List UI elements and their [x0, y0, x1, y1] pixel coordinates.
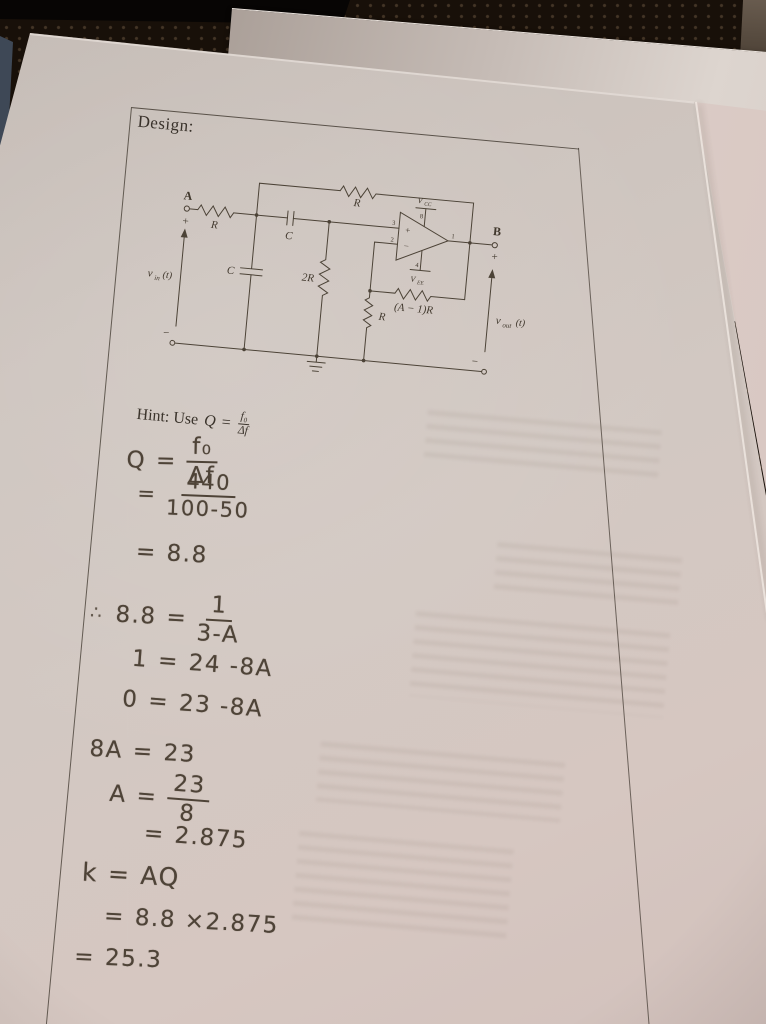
hw-lhs: 0 [121, 686, 139, 713]
terminal-rail-left [170, 340, 175, 345]
hw-lhs: 1 [131, 646, 149, 673]
opamp-plus-mark: + [405, 225, 411, 235]
vee-subscript: EE [416, 280, 425, 287]
bottom-rail [175, 343, 481, 371]
vout-subscript: out [502, 321, 513, 330]
terminal-rail-right [481, 369, 486, 374]
hw-eq: = [103, 903, 125, 930]
vin-minus: − [163, 327, 170, 340]
node-rail-2 [315, 354, 319, 358]
terminal-b-circle [492, 242, 498, 248]
terminal-a-circle [184, 206, 190, 212]
vout-arrow-line [485, 277, 492, 352]
terminal-b-label: B [492, 224, 501, 239]
hint-denominator: Δf [235, 424, 250, 438]
hw-lhs: k [81, 857, 99, 887]
hw-eq: = [147, 688, 170, 715]
vee-label: V [410, 275, 417, 285]
node-output [468, 241, 472, 245]
shunt-capacitor-label: C [226, 265, 235, 278]
vee-rail [410, 250, 432, 272]
hw-val: 23 [163, 740, 197, 768]
gain-resistor [370, 286, 466, 305]
page-content: Design: [40, 107, 599, 1024]
series-capacitor-plates [287, 211, 294, 225]
node-n1 [255, 213, 259, 217]
handwritten-line: k = AQ [81, 857, 180, 892]
pin-2-label: 2 [390, 237, 394, 244]
vin-label: v [147, 267, 153, 279]
handwritten-line: = 25.3 [74, 944, 163, 974]
gain-resistor-label: (A − 1)R [394, 301, 434, 317]
pin-4-label: 4 [415, 262, 420, 269]
terminal-a-plus: + [182, 215, 189, 228]
hw-therefore: ∴ [90, 602, 107, 624]
hw-eq: = [107, 859, 131, 889]
ground-resistor [360, 290, 374, 360]
handwritten-line: = 8.8 [135, 539, 208, 569]
vout-arrowhead [488, 269, 496, 279]
photo-scene: Design: [0, 0, 766, 1024]
hw-lhs: A [109, 781, 128, 808]
hint-q-symbol: Q [203, 412, 216, 431]
circuit-diagram: A + R R C C 2R (A − 1)R R + − 3 2 1 8 4 … [135, 166, 554, 427]
hw-num: f₀ [187, 435, 218, 464]
wire-main [234, 213, 399, 228]
input-resistor-zigzag [197, 205, 234, 218]
hw-fraction: 440 100-50 [166, 469, 251, 522]
top-resistor-label: R [352, 197, 361, 210]
vcc-label: V [417, 196, 424, 206]
handwritten-line: ∴ 8.8 = 1 3-A [89, 586, 242, 648]
hint-equals: = [221, 413, 232, 432]
hw-num: 23 [167, 771, 211, 802]
node-n3 [368, 289, 372, 293]
hw-val: 25.3 [105, 945, 163, 973]
pin-8-label: 8 [420, 213, 424, 220]
node-rail-1 [242, 348, 246, 352]
hw-lhs: 8A [89, 736, 124, 764]
terminal-a-label: A [183, 188, 193, 203]
vout-arg: (t) [515, 317, 526, 329]
shunt-resistor-label: 2R [301, 272, 315, 285]
hint-fraction: f₀ Δf [235, 410, 251, 439]
node-n2 [327, 220, 331, 224]
hint-prefix: Hint: Use [136, 406, 199, 430]
terminal-b-plus: + [491, 251, 498, 264]
hw-eq: = [135, 539, 157, 566]
vin-arrowhead [181, 228, 189, 238]
input-resistor-label: R [210, 219, 219, 232]
hw-lhs: 8.8 [115, 601, 158, 629]
hw-den: 3-A [196, 620, 240, 648]
shunt-resistor-2r [312, 221, 334, 356]
node-rail-3 [362, 359, 366, 363]
vcc-subscript: CC [424, 202, 432, 209]
ground-resistor-label: R [377, 311, 386, 324]
wire-inverting-input [370, 242, 397, 293]
opamp-triangle [396, 212, 450, 264]
hw-eq: = [74, 944, 96, 971]
hw-fraction: 1 3-A [196, 592, 242, 648]
opamp-minus-mark: − [403, 241, 409, 251]
hw-num: 1 [205, 593, 233, 622]
hw-val: 2.875 [174, 823, 249, 854]
handwritten-line: A = 23 8 [107, 767, 211, 828]
hw-eq: = [166, 604, 188, 631]
hw-eq: = [143, 820, 166, 847]
hw-eq: = [136, 783, 159, 810]
wire-input [190, 209, 198, 210]
hw-num: 440 [181, 470, 237, 498]
vin-subscript: in [154, 274, 161, 283]
vout-label: v [495, 315, 501, 327]
shunt-capacitor [233, 214, 267, 350]
hw-den: 100-50 [166, 495, 250, 522]
hint-numerator: f₀ [238, 410, 250, 425]
vout-minus: − [471, 356, 478, 369]
vin-arrow-line [176, 236, 184, 326]
hw-eq: = [137, 481, 157, 506]
handwritten-line: = 440 100-50 [136, 468, 250, 522]
hw-eq: = [132, 738, 154, 765]
hw-eq: = [157, 648, 180, 675]
hw-val: 8.8 [166, 540, 209, 568]
pin-3-label: 3 [392, 220, 396, 227]
vcc-rail [414, 208, 436, 228]
series-capacitor-label: C [285, 230, 294, 243]
pin-1-label: 1 [451, 233, 455, 240]
hw-fraction: 23 8 [165, 771, 211, 828]
vin-arg: (t) [162, 270, 173, 282]
hw-val: AQ [140, 861, 181, 892]
